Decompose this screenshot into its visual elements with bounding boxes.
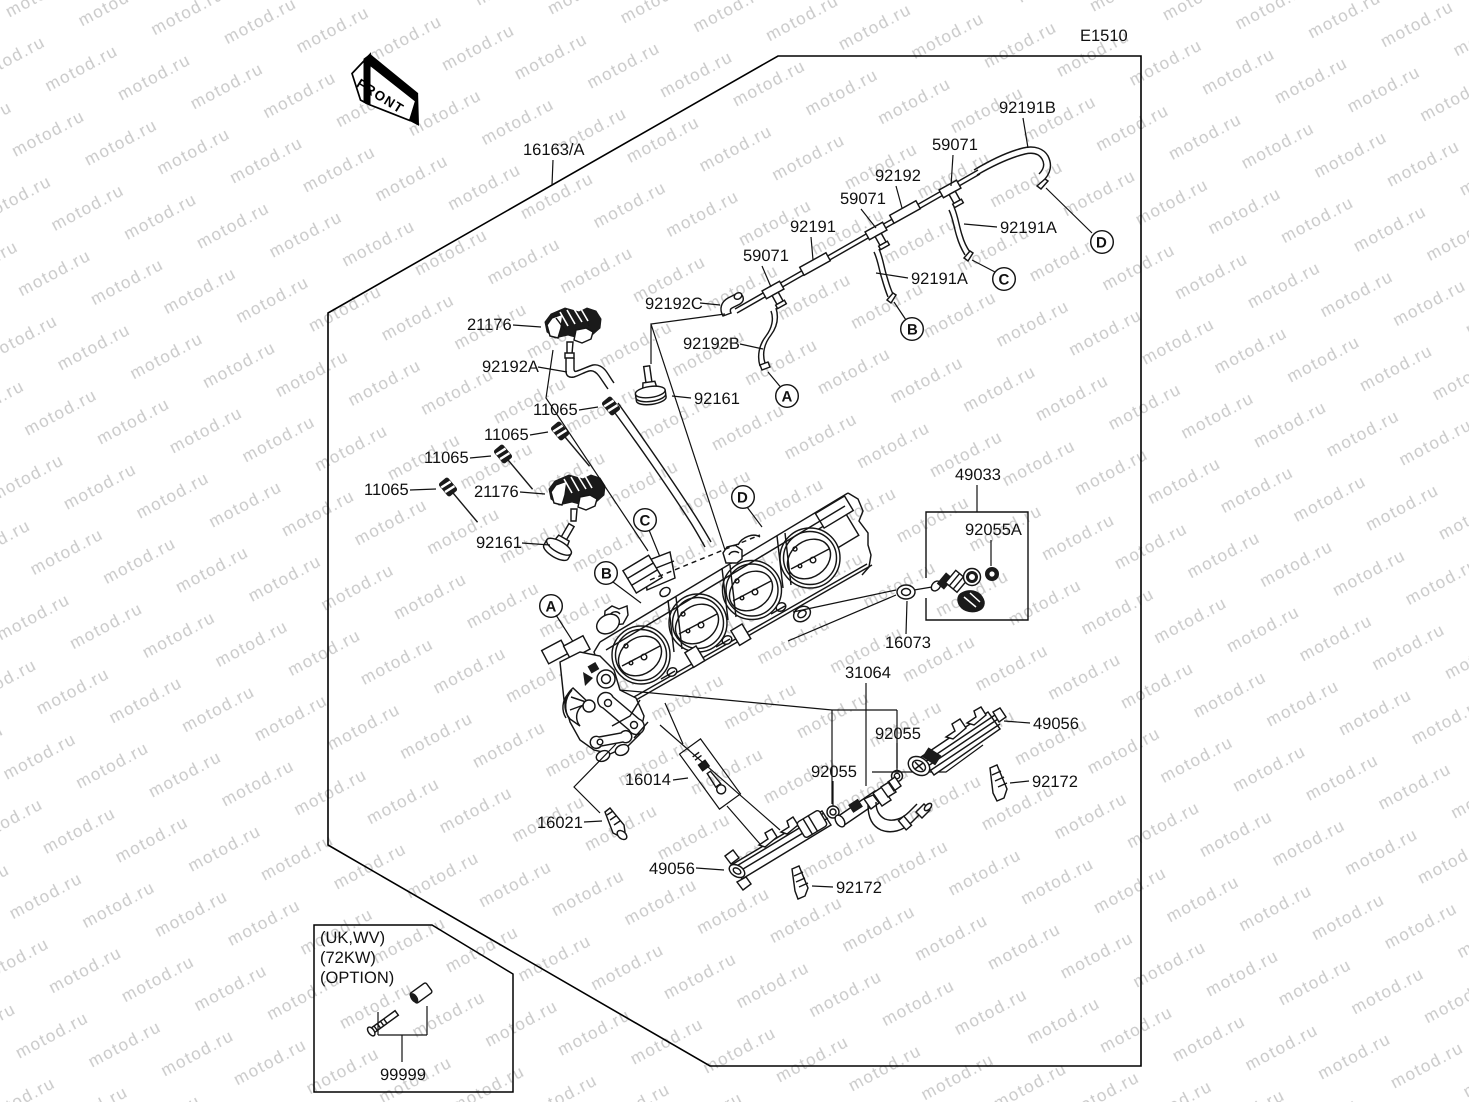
svg-text:92172: 92172 xyxy=(1032,773,1078,791)
svg-text:11065: 11065 xyxy=(364,481,409,499)
svg-text:E1510: E1510 xyxy=(1080,27,1128,45)
svg-text:D: D xyxy=(737,490,748,507)
svg-text:D: D xyxy=(1096,235,1107,252)
svg-text:92191A: 92191A xyxy=(911,270,968,288)
svg-text:11065: 11065 xyxy=(484,426,529,444)
svg-text:21176: 21176 xyxy=(474,483,519,501)
svg-text:59071: 59071 xyxy=(743,247,789,265)
svg-text:11065: 11065 xyxy=(533,401,578,419)
svg-text:16014: 16014 xyxy=(625,771,671,789)
svg-text:A: A xyxy=(782,389,793,406)
svg-text:B: B xyxy=(907,322,918,339)
svg-text:49033: 49033 xyxy=(955,466,1001,484)
svg-text:92161: 92161 xyxy=(476,534,522,552)
svg-text:99999: 99999 xyxy=(380,1066,426,1084)
svg-text:92172: 92172 xyxy=(836,879,882,897)
svg-text:21176: 21176 xyxy=(467,316,512,334)
svg-text:A: A xyxy=(546,599,557,616)
svg-text:16021: 16021 xyxy=(537,814,583,832)
svg-text:C: C xyxy=(640,513,651,530)
svg-text:92192: 92192 xyxy=(875,167,921,185)
svg-text:31064: 31064 xyxy=(845,664,891,682)
svg-text:92192C: 92192C xyxy=(645,295,703,313)
svg-text:B: B xyxy=(601,566,612,583)
svg-text:16073: 16073 xyxy=(885,634,931,652)
svg-text:C: C xyxy=(999,272,1010,289)
svg-text:11065: 11065 xyxy=(424,449,469,467)
svg-text:92161: 92161 xyxy=(694,390,740,408)
svg-text:92055A: 92055A xyxy=(965,521,1022,539)
svg-text:59071: 59071 xyxy=(840,190,886,208)
svg-text:92191A: 92191A xyxy=(1000,219,1057,237)
svg-text:92191B: 92191B xyxy=(999,99,1056,117)
svg-text:16163/A: 16163/A xyxy=(523,141,584,159)
svg-text:49056: 49056 xyxy=(1033,715,1079,733)
svg-text:(UK,WV): (UK,WV) xyxy=(320,929,385,947)
svg-text:59071: 59071 xyxy=(932,136,978,154)
svg-text:49056: 49056 xyxy=(649,860,695,878)
svg-text:92055: 92055 xyxy=(811,763,857,781)
svg-text:92055: 92055 xyxy=(875,725,921,743)
svg-text:92192B: 92192B xyxy=(683,335,740,353)
svg-text:92191: 92191 xyxy=(790,218,836,236)
svg-text:92192A: 92192A xyxy=(482,358,539,376)
svg-text:(72KW): (72KW) xyxy=(320,949,376,967)
svg-text:(OPTION): (OPTION) xyxy=(320,969,394,987)
